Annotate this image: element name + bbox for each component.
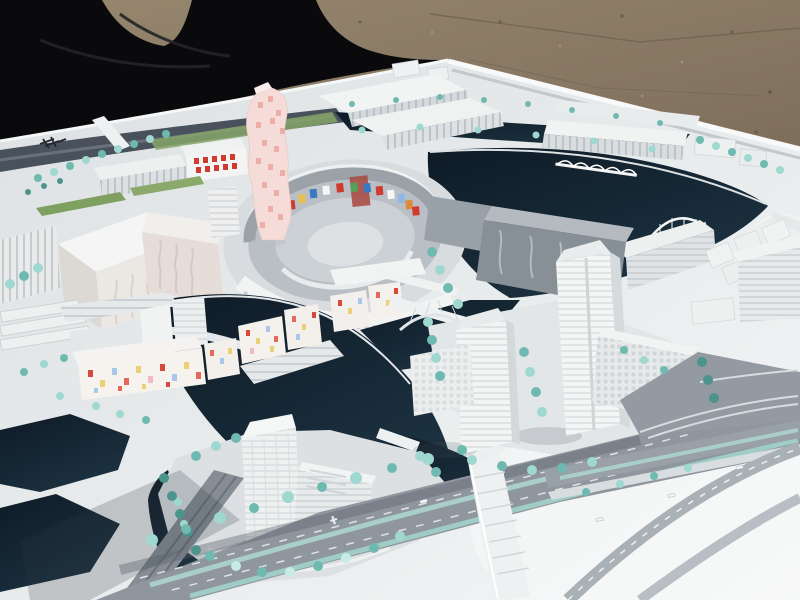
photo-architectural-model: Architectural scale model of a waterfron… bbox=[0, 0, 800, 600]
model-scene bbox=[0, 0, 800, 600]
